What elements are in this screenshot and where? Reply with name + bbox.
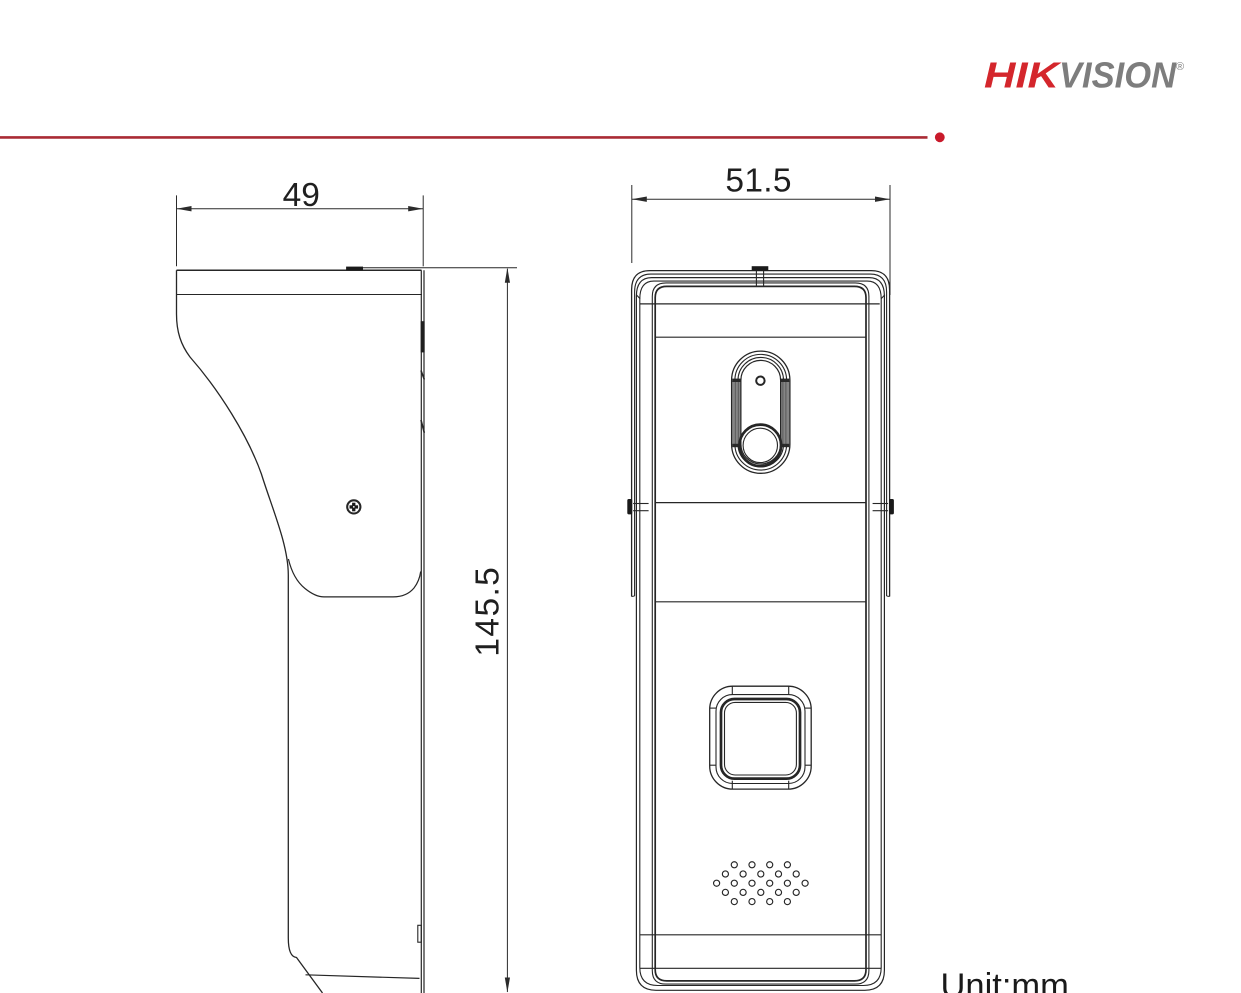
svg-text:49: 49: [283, 177, 320, 214]
svg-text:Unit:mm: Unit:mm: [941, 967, 1069, 993]
svg-text:VISION: VISION: [1059, 55, 1177, 96]
svg-text:51.5: 51.5: [725, 162, 791, 199]
svg-text:145.5: 145.5: [469, 566, 506, 657]
svg-text:HIK: HIK: [984, 55, 1063, 96]
svg-text:®: ®: [1176, 61, 1184, 73]
